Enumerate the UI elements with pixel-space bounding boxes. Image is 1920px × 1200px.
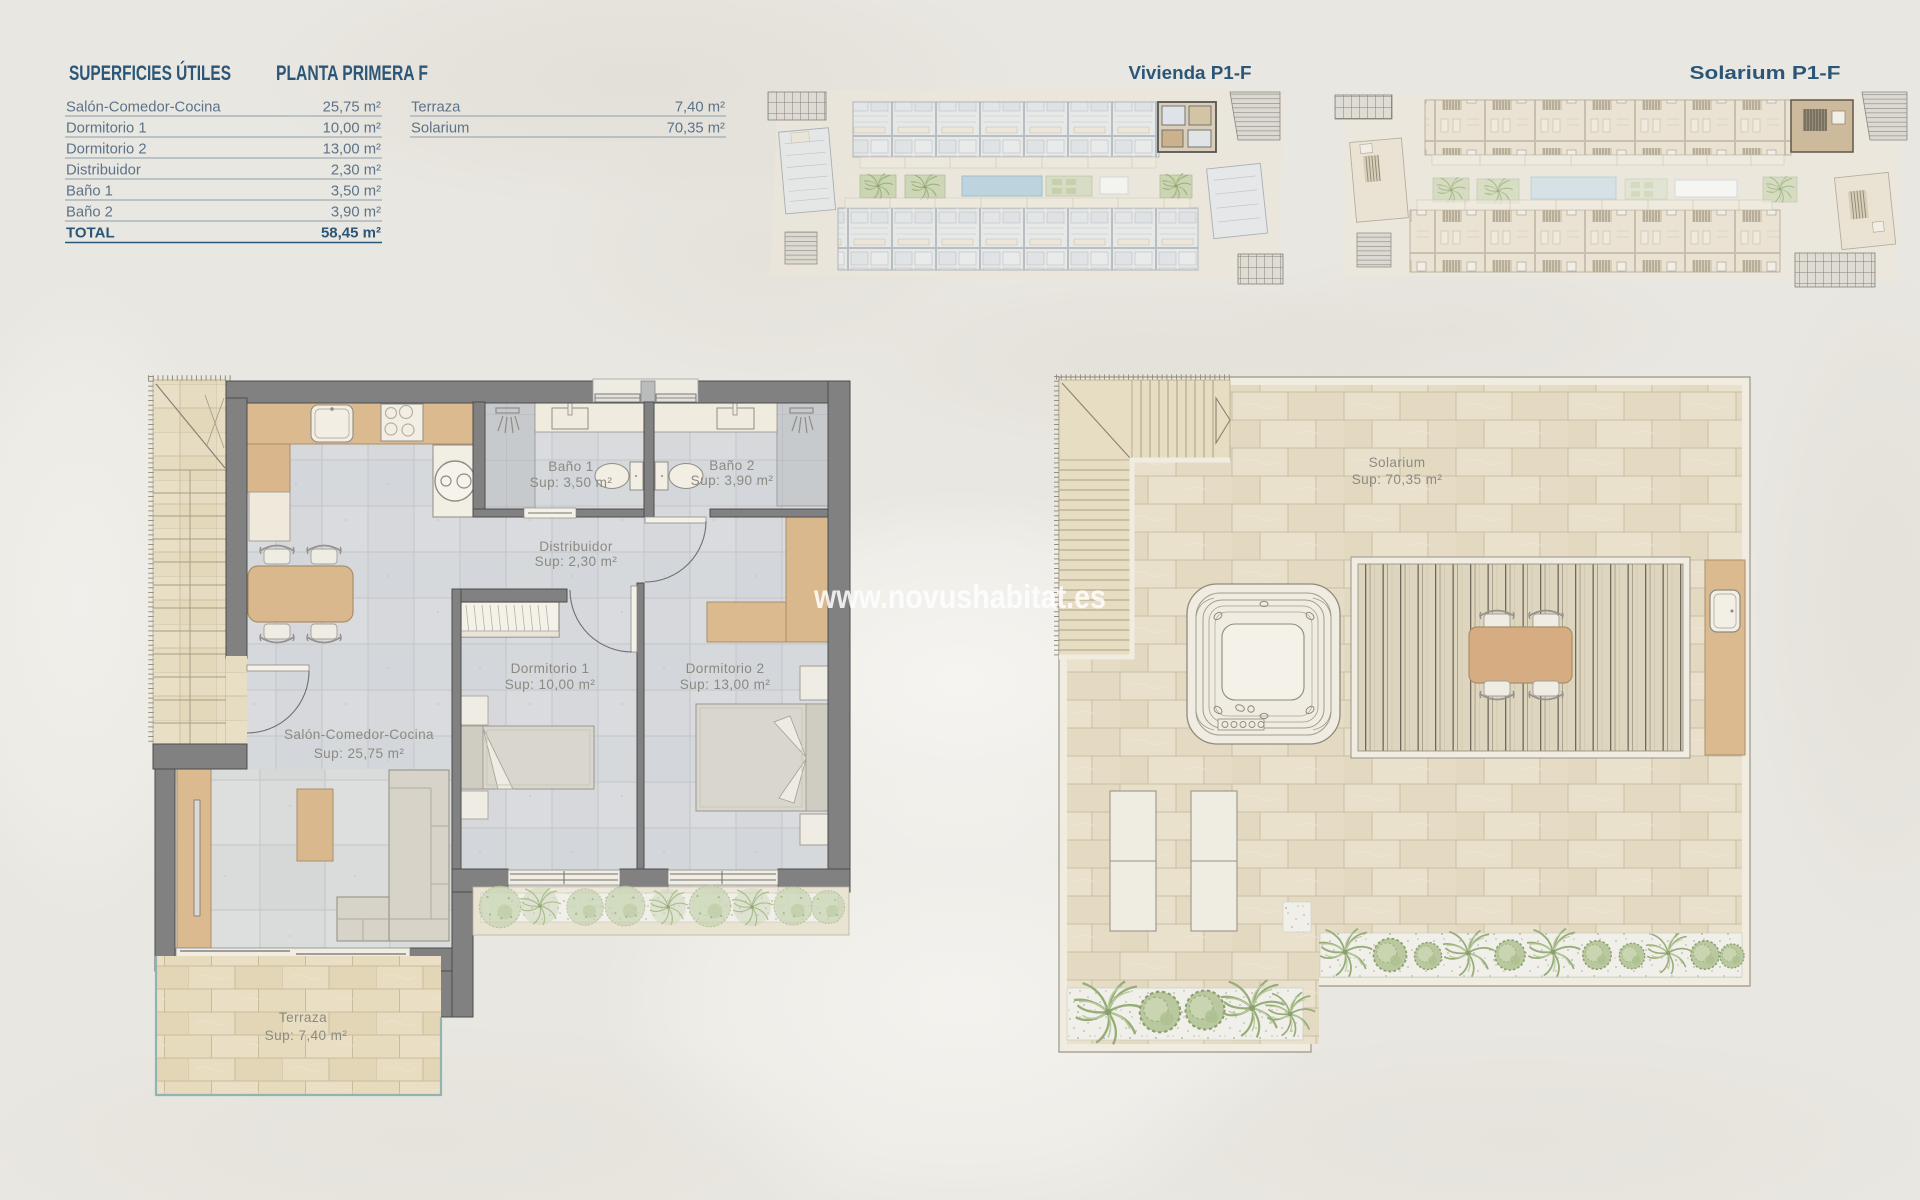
svg-text:Vivienda P1-F: Vivienda P1-F — [1129, 62, 1252, 83]
svg-text:Sup: 2,30 m²: Sup: 2,30 m² — [535, 554, 618, 569]
svg-text:Baño 2: Baño 2 — [66, 205, 113, 221]
svg-text:Sup: 25,75 m²: Sup: 25,75 m² — [314, 746, 405, 761]
svg-text:Solarium: Solarium — [411, 121, 469, 137]
svg-text:25,75 m²: 25,75 m² — [323, 100, 381, 116]
svg-text:Sup: 3,90 m²: Sup: 3,90 m² — [691, 473, 774, 488]
svg-text:3,50 m²: 3,50 m² — [331, 184, 381, 200]
svg-text:www.novushabitat.es: www.novushabitat.es — [813, 578, 1106, 615]
svg-text:Baño 2: Baño 2 — [709, 458, 755, 473]
svg-text:7,40 m²: 7,40 m² — [675, 100, 725, 116]
svg-text:Distribuidor: Distribuidor — [539, 539, 613, 554]
svg-text:Baño 1: Baño 1 — [548, 459, 594, 474]
svg-text:Baño 1: Baño 1 — [66, 184, 113, 200]
svg-text:Terraza: Terraza — [279, 1010, 327, 1025]
svg-text:Dormitorio 2: Dormitorio 2 — [66, 142, 147, 158]
svg-text:Dormitorio 1: Dormitorio 1 — [511, 661, 590, 676]
svg-text:70,35 m²: 70,35 m² — [667, 121, 725, 137]
svg-text:Distribuidor: Distribuidor — [66, 163, 141, 179]
svg-text:Dormitorio 2: Dormitorio 2 — [686, 661, 765, 676]
svg-text:10,00 m²: 10,00 m² — [323, 121, 381, 137]
svg-text:Sup: 7,40 m²: Sup: 7,40 m² — [265, 1028, 348, 1043]
svg-text:Dormitorio 1: Dormitorio 1 — [66, 121, 147, 137]
svg-text:13,00 m²: 13,00 m² — [323, 142, 381, 158]
svg-text:Sup: 13,00 m²: Sup: 13,00 m² — [680, 677, 771, 692]
svg-text:2,30 m²: 2,30 m² — [331, 163, 381, 179]
svg-text:Solarium: Solarium — [1369, 455, 1426, 470]
svg-text:Salón-Comedor-Cocina: Salón-Comedor-Cocina — [284, 727, 434, 742]
svg-text:Sup: 10,00 m²: Sup: 10,00 m² — [505, 677, 596, 692]
svg-text:Salón-Comedor-Cocina: Salón-Comedor-Cocina — [66, 100, 221, 116]
svg-text:Terraza: Terraza — [411, 100, 461, 116]
svg-text:Sup: 3,50 m²: Sup: 3,50 m² — [530, 475, 613, 490]
svg-text:PLANTA PRIMERA F: PLANTA PRIMERA F — [276, 61, 428, 85]
svg-text:TOTAL: TOTAL — [66, 225, 115, 242]
svg-text:3,90 m²: 3,90 m² — [331, 205, 381, 221]
svg-text:SUPERFICIES ÚTILES: SUPERFICIES ÚTILES — [69, 60, 231, 85]
svg-text:Sup: 70,35 m²: Sup: 70,35 m² — [1352, 472, 1443, 487]
svg-text:58,45 m²: 58,45 m² — [321, 225, 381, 242]
svg-text:Solarium P1-F: Solarium P1-F — [1690, 62, 1841, 83]
